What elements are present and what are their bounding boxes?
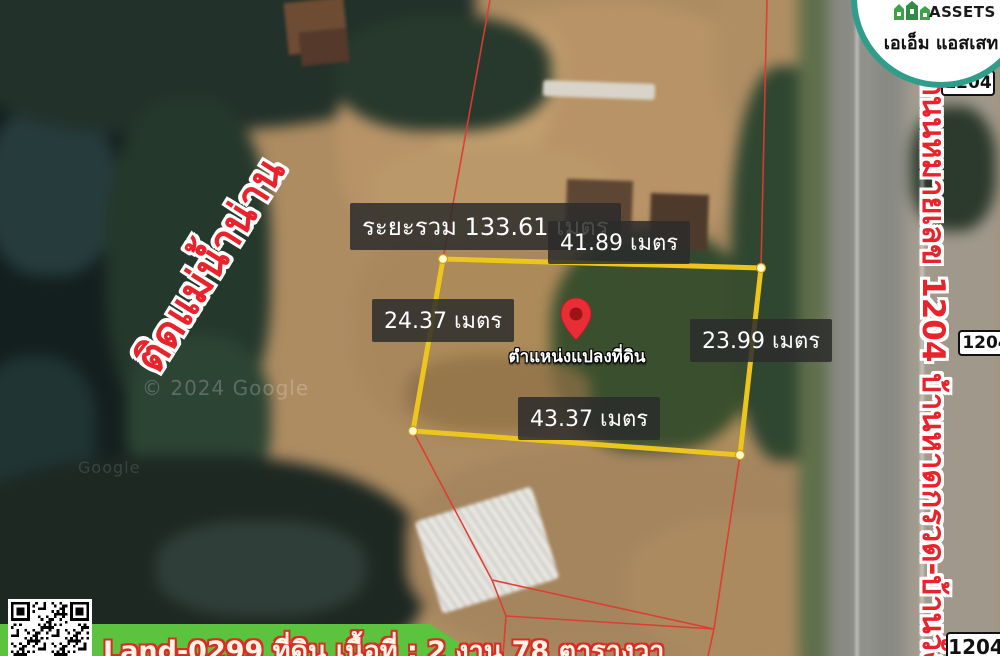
house-icon [893, 1, 931, 21]
map-watermark: Google [78, 458, 140, 477]
brand-name-th: เอเอ็ม แอสเสท [871, 28, 1000, 57]
left-side-length-label: 24.37 เมตร [372, 299, 514, 342]
qr-code [8, 599, 92, 656]
top-side-length-label: 41.89 เมตร [548, 221, 690, 264]
road-annotation: ถนนหมายเลข 1204 บ้านหาดกรวด-บ้านวังแดง [909, 77, 959, 649]
location-pin-icon [559, 296, 593, 342]
qr-code-pattern [11, 602, 89, 656]
pin-label: ตำแหน่งแปลงที่ดิน [487, 343, 667, 370]
bottom-side-length-label: 43.37 เมตร [518, 397, 660, 440]
right-side-length-label: 23.99 เมตร [690, 319, 832, 362]
brand-name-en: ASSETS [929, 3, 996, 21]
listing-image: ระยะรวม 133.61 เมตร 41.89 เมตร 24.37 เมต… [0, 0, 1000, 656]
route-sign: 1204 [958, 330, 1000, 356]
route-sign: 1204 [946, 632, 1000, 656]
listing-banner-text: Land-0299 ที่ดิน เนื้อที่ : 2 งาน 78 ตาร… [103, 629, 664, 656]
